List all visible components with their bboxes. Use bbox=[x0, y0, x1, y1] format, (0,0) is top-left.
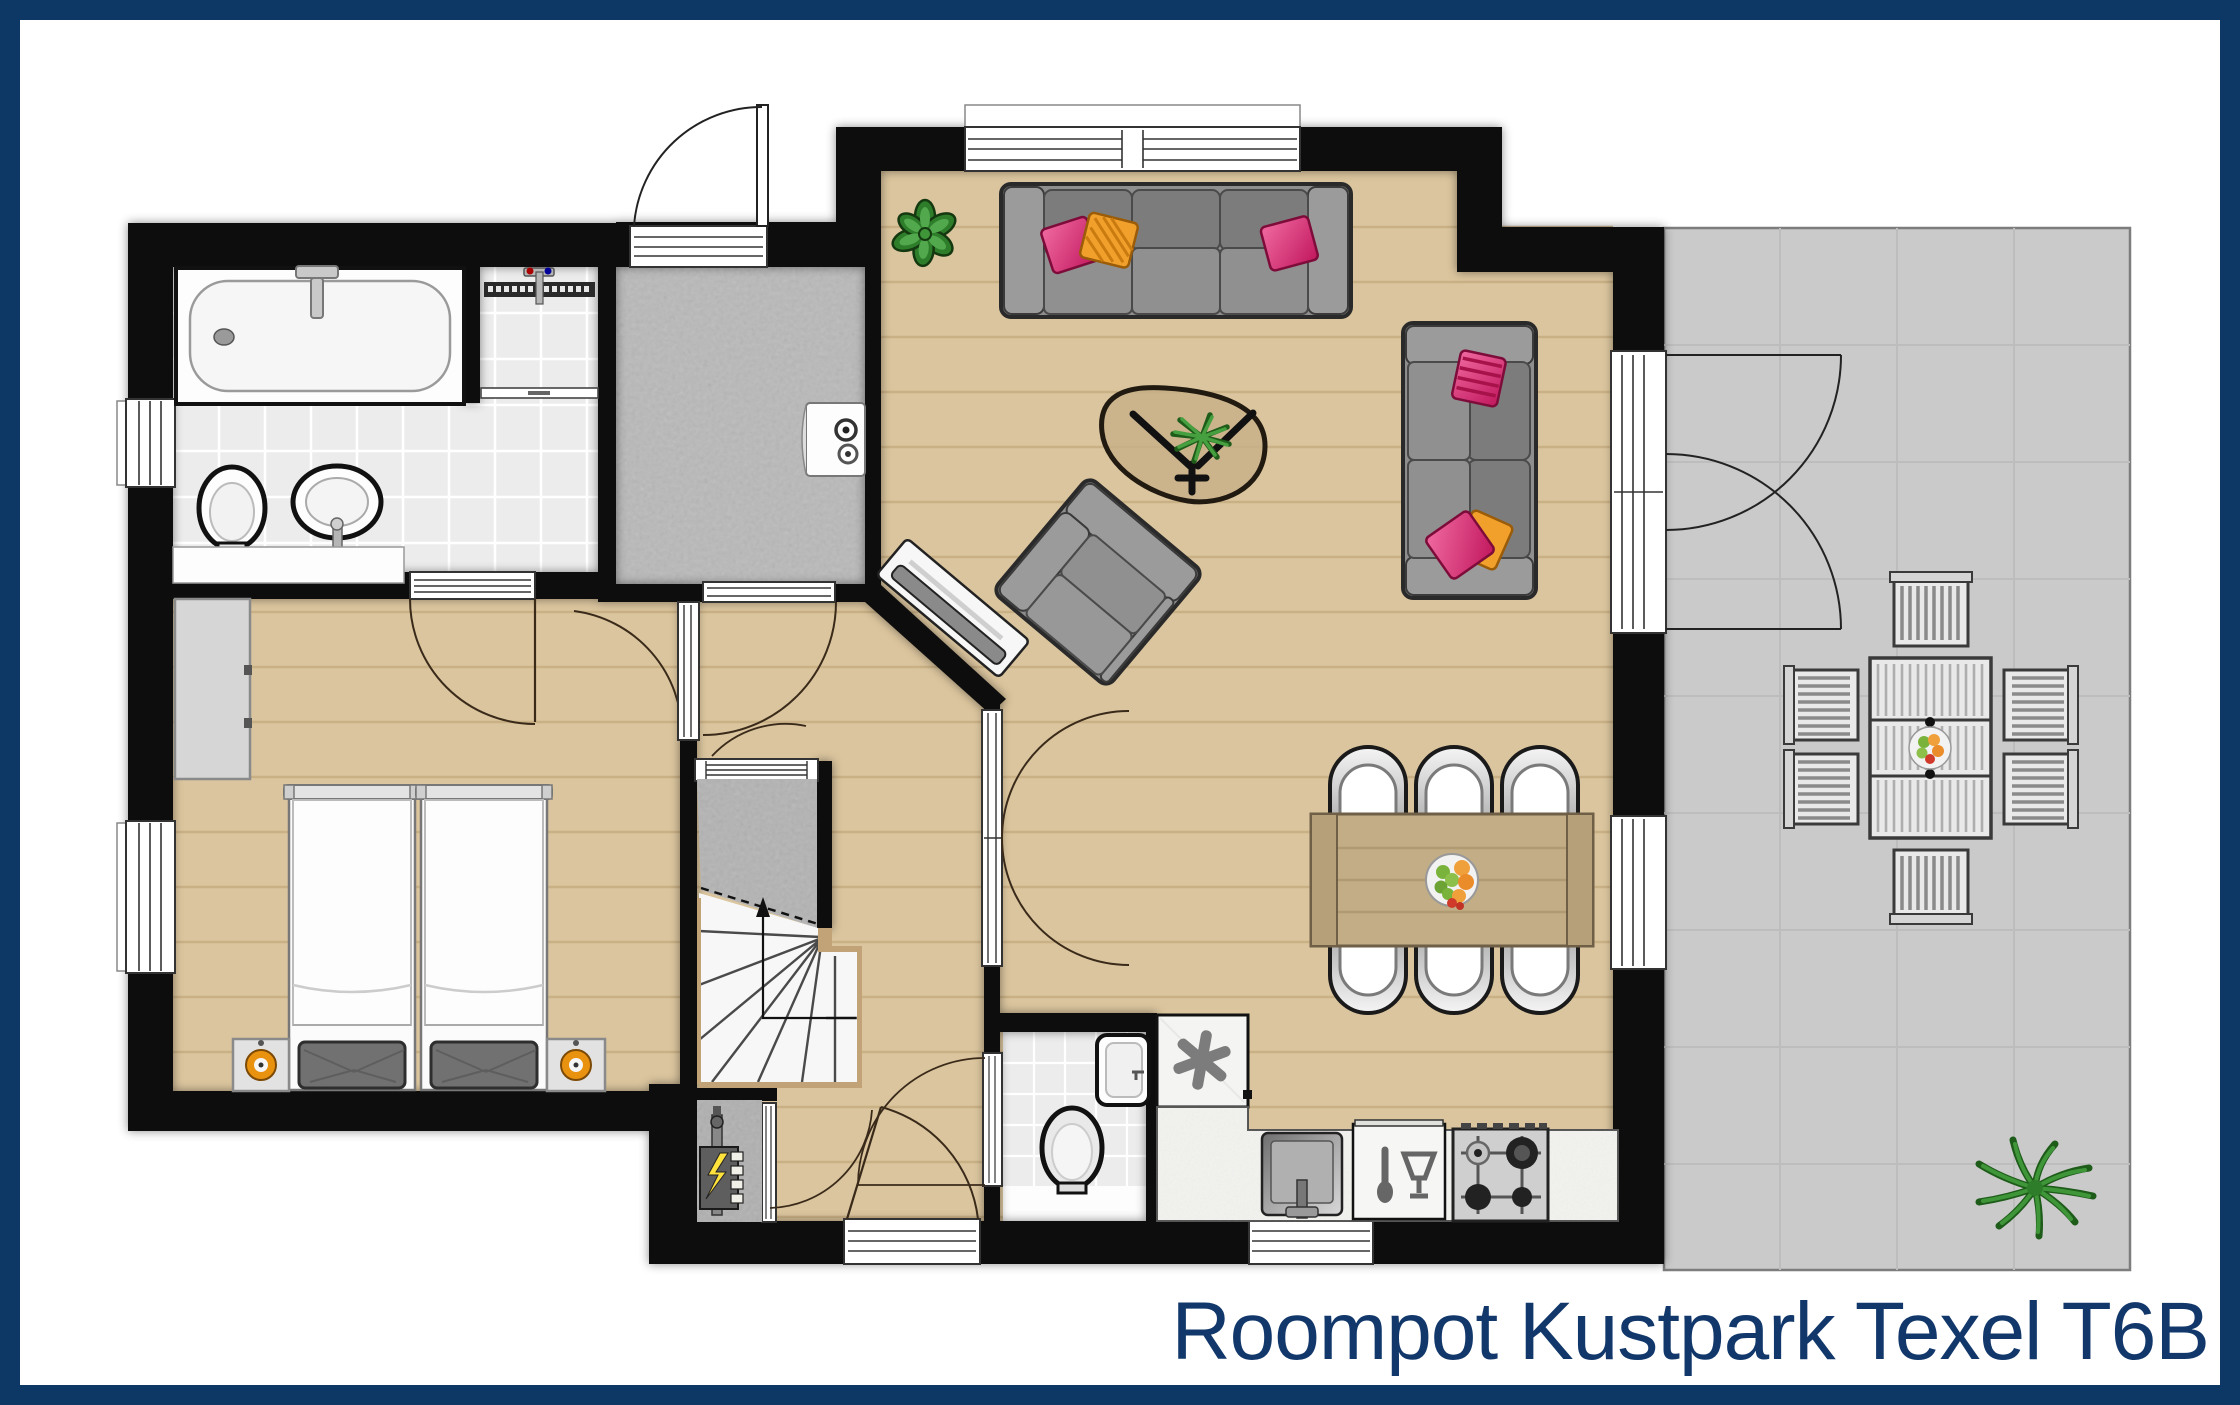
svg-text:Roompot Kustpark Texel T6B: Roompot Kustpark Texel T6B bbox=[1171, 1286, 2209, 1377]
